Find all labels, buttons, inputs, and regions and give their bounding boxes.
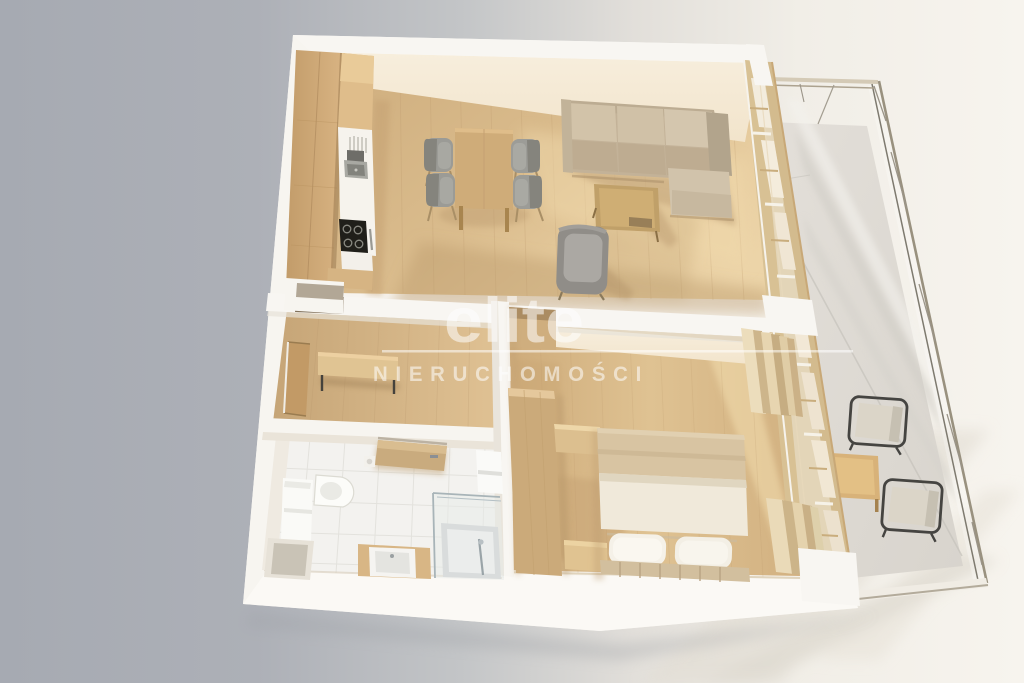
svg-text:NIERUCHOMOŚCI: NIERUCHOMOŚCI: [373, 362, 649, 386]
svg-text:elite: elite: [444, 286, 584, 356]
